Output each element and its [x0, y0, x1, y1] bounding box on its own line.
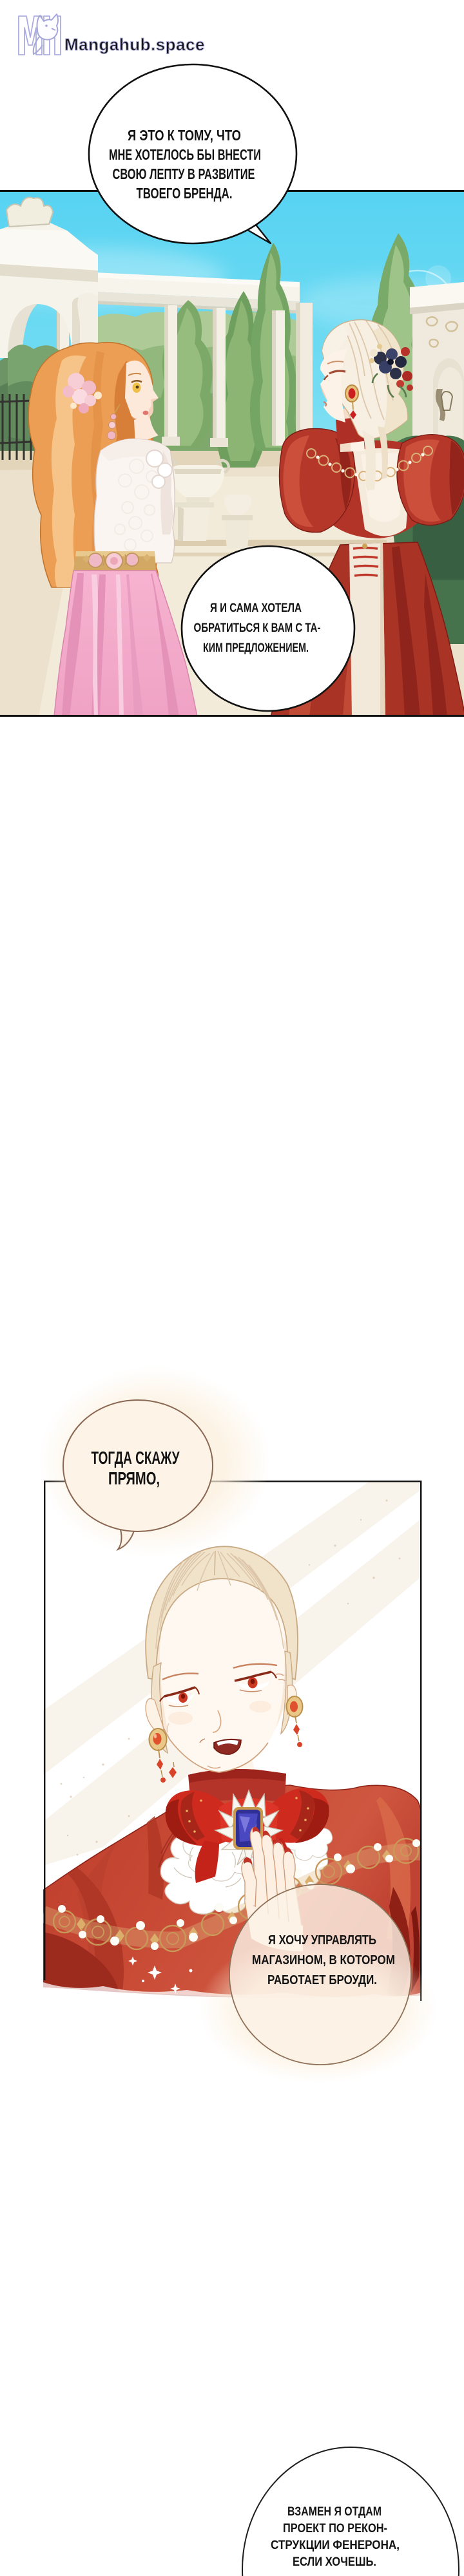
svg-text:КИМ ПРЕДЛОЖЕНИЕМ.: КИМ ПРЕДЛОЖЕНИЕМ.	[203, 641, 309, 655]
svg-text:ОБРАТИТЬСЯ К ВАМ С ТА-: ОБРАТИТЬСЯ К ВАМ С ТА-	[194, 621, 321, 635]
svg-text:ПРЯМО,: ПРЯМО,	[108, 1468, 160, 1488]
svg-text:МАГАЗИНОМ, В КОТОРОМ: МАГАЗИНОМ, В КОТОРОМ	[252, 1953, 395, 1967]
svg-text:ЕСЛИ ХОЧЕШЬ.: ЕСЛИ ХОЧЕШЬ.	[293, 2555, 376, 2569]
svg-text:Я И САМА ХОТЕЛА: Я И САМА ХОТЕЛА	[210, 601, 302, 615]
svg-text:Mangahub.space: Mangahub.space	[64, 35, 205, 54]
svg-text:РАБОТАЕТ БРОУДИ.: РАБОТАЕТ БРОУДИ.	[267, 1973, 377, 1987]
svg-text:ПРОЕКТ ПО РЕКОН-: ПРОЕКТ ПО РЕКОН-	[283, 2522, 387, 2535]
svg-text:МНЕ ХОТЕЛОСЬ БЫ ВНЕСТИ: МНЕ ХОТЕЛОСЬ БЫ ВНЕСТИ	[109, 146, 261, 163]
svg-text:Я ЭТО К ТОМУ, ЧТО: Я ЭТО К ТОМУ, ЧТО	[128, 127, 241, 144]
svg-text:ВЗАМЕН Я ОТДАМ: ВЗАМЕН Я ОТДАМ	[287, 2505, 382, 2519]
svg-text:ТОГДА СКАЖУ: ТОГДА СКАЖУ	[92, 1448, 180, 1468]
svg-text:ТВОЕГО БРЕНДА.: ТВОЕГО БРЕНДА.	[137, 185, 233, 202]
svg-text:СТРУКЦИИ ФЕНЕРОНА,: СТРУКЦИИ ФЕНЕРОНА,	[271, 2539, 400, 2552]
svg-text:СВОЮ ЛЕПТУ В РАЗВИТИЕ: СВОЮ ЛЕПТУ В РАЗВИТИЕ	[113, 166, 255, 182]
svg-text:Я ХОЧУ УПРАВЛЯТЬ: Я ХОЧУ УПРАВЛЯТЬ	[268, 1933, 376, 1947]
